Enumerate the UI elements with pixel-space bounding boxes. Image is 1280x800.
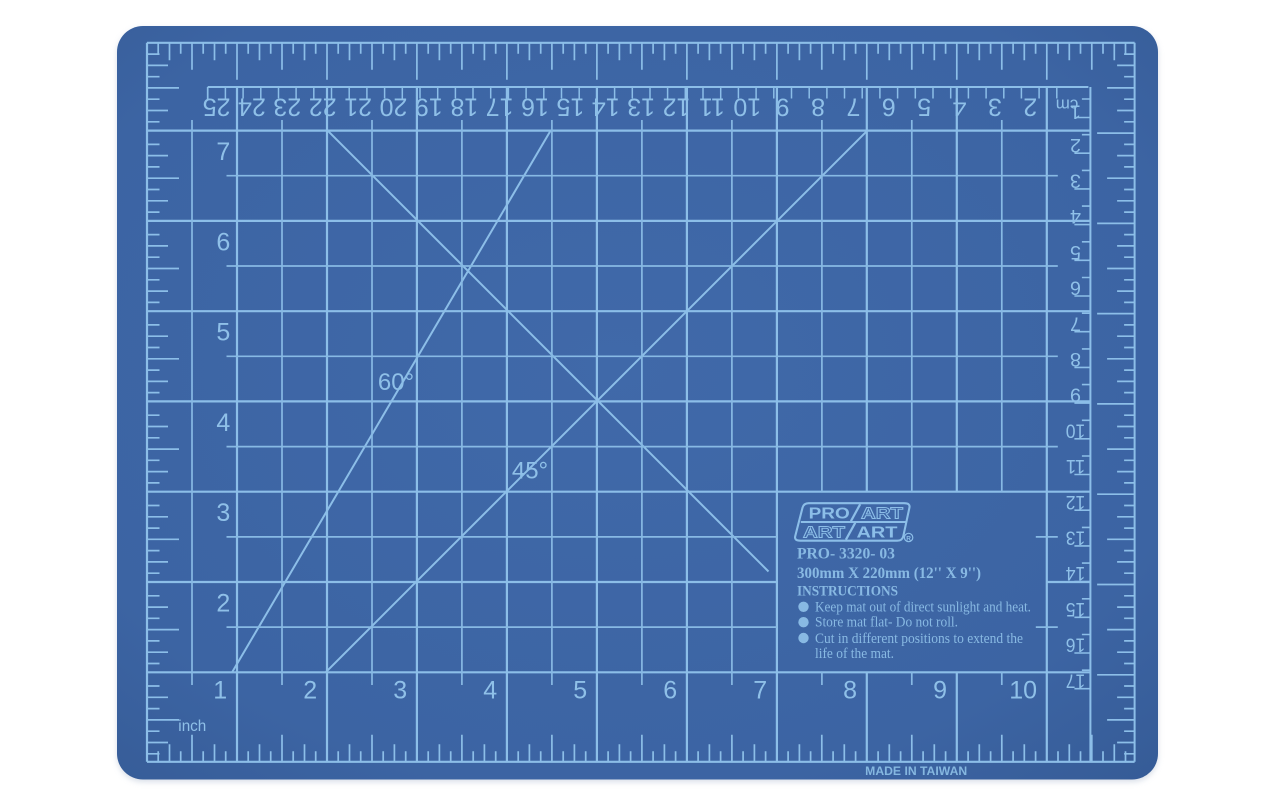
svg-text:21: 21 — [344, 93, 372, 121]
svg-text:7: 7 — [846, 93, 860, 121]
svg-text:4: 4 — [1070, 205, 1081, 226]
svg-text:life of the mat.: life of the mat. — [815, 645, 894, 662]
svg-text:inch: inch — [178, 718, 206, 735]
svg-text:20: 20 — [380, 93, 408, 121]
svg-text:5: 5 — [917, 93, 931, 121]
svg-text:1: 1 — [213, 677, 227, 705]
svg-text:ART: ART — [857, 524, 899, 541]
svg-text:6: 6 — [216, 228, 230, 256]
svg-text:5: 5 — [216, 319, 230, 347]
svg-text:2: 2 — [216, 589, 230, 617]
svg-text:23: 23 — [273, 93, 301, 121]
svg-text:ART: ART — [803, 524, 846, 541]
svg-text:18: 18 — [450, 93, 478, 121]
svg-text:6: 6 — [882, 93, 896, 121]
svg-text:8: 8 — [843, 677, 857, 705]
svg-text:15: 15 — [1066, 598, 1086, 619]
svg-text:16: 16 — [1066, 634, 1086, 655]
svg-text:13: 13 — [1066, 527, 1086, 548]
svg-text:15: 15 — [556, 93, 584, 121]
svg-text:1: 1 — [1070, 101, 1081, 122]
svg-text:17: 17 — [486, 93, 514, 121]
svg-text:ART: ART — [861, 505, 904, 522]
svg-text:3: 3 — [988, 93, 1002, 121]
svg-text:24: 24 — [238, 93, 266, 121]
svg-text:4: 4 — [216, 409, 230, 437]
svg-text:2: 2 — [1023, 93, 1037, 121]
svg-text:INSTRUCTIONS: INSTRUCTIONS — [797, 584, 898, 600]
svg-text:10: 10 — [1066, 419, 1086, 440]
svg-text:22: 22 — [309, 93, 337, 121]
svg-text:12: 12 — [1066, 491, 1086, 512]
svg-text:R: R — [906, 535, 911, 542]
svg-text:7: 7 — [753, 677, 767, 705]
svg-text:PRO: PRO — [809, 505, 850, 522]
svg-text:5: 5 — [573, 677, 587, 705]
svg-text:Store mat flat- Do not roll.: Store mat flat- Do not roll. — [815, 613, 958, 630]
svg-text:7: 7 — [216, 138, 230, 166]
svg-text:10: 10 — [733, 93, 761, 121]
svg-text:6: 6 — [663, 677, 677, 705]
svg-text:8: 8 — [1070, 348, 1081, 369]
svg-text:7: 7 — [1070, 312, 1081, 333]
svg-text:11: 11 — [1066, 455, 1086, 476]
svg-text:6: 6 — [1070, 277, 1081, 298]
svg-text:4: 4 — [952, 93, 966, 121]
svg-text:10: 10 — [1009, 677, 1037, 705]
svg-text:14: 14 — [1065, 562, 1085, 583]
svg-text:2: 2 — [1070, 134, 1081, 155]
svg-text:4: 4 — [483, 677, 497, 705]
svg-text:300mm X 220mm (12'' X 9''): 300mm X 220mm (12'' X 9'') — [797, 565, 981, 582]
svg-text:3: 3 — [216, 499, 230, 527]
svg-text:8: 8 — [811, 93, 825, 121]
svg-text:5: 5 — [1070, 241, 1081, 262]
svg-text:PRO- 3320- 03: PRO- 3320- 03 — [797, 545, 895, 562]
svg-text:3: 3 — [1070, 169, 1081, 190]
svg-text:19: 19 — [415, 93, 443, 121]
svg-text:3: 3 — [393, 677, 407, 705]
svg-text:2: 2 — [303, 677, 317, 705]
svg-text:13: 13 — [627, 93, 655, 121]
svg-text:MADE IN TAIWAN: MADE IN TAIWAN — [865, 766, 967, 778]
svg-text:9: 9 — [933, 677, 947, 705]
svg-text:16: 16 — [521, 93, 549, 121]
